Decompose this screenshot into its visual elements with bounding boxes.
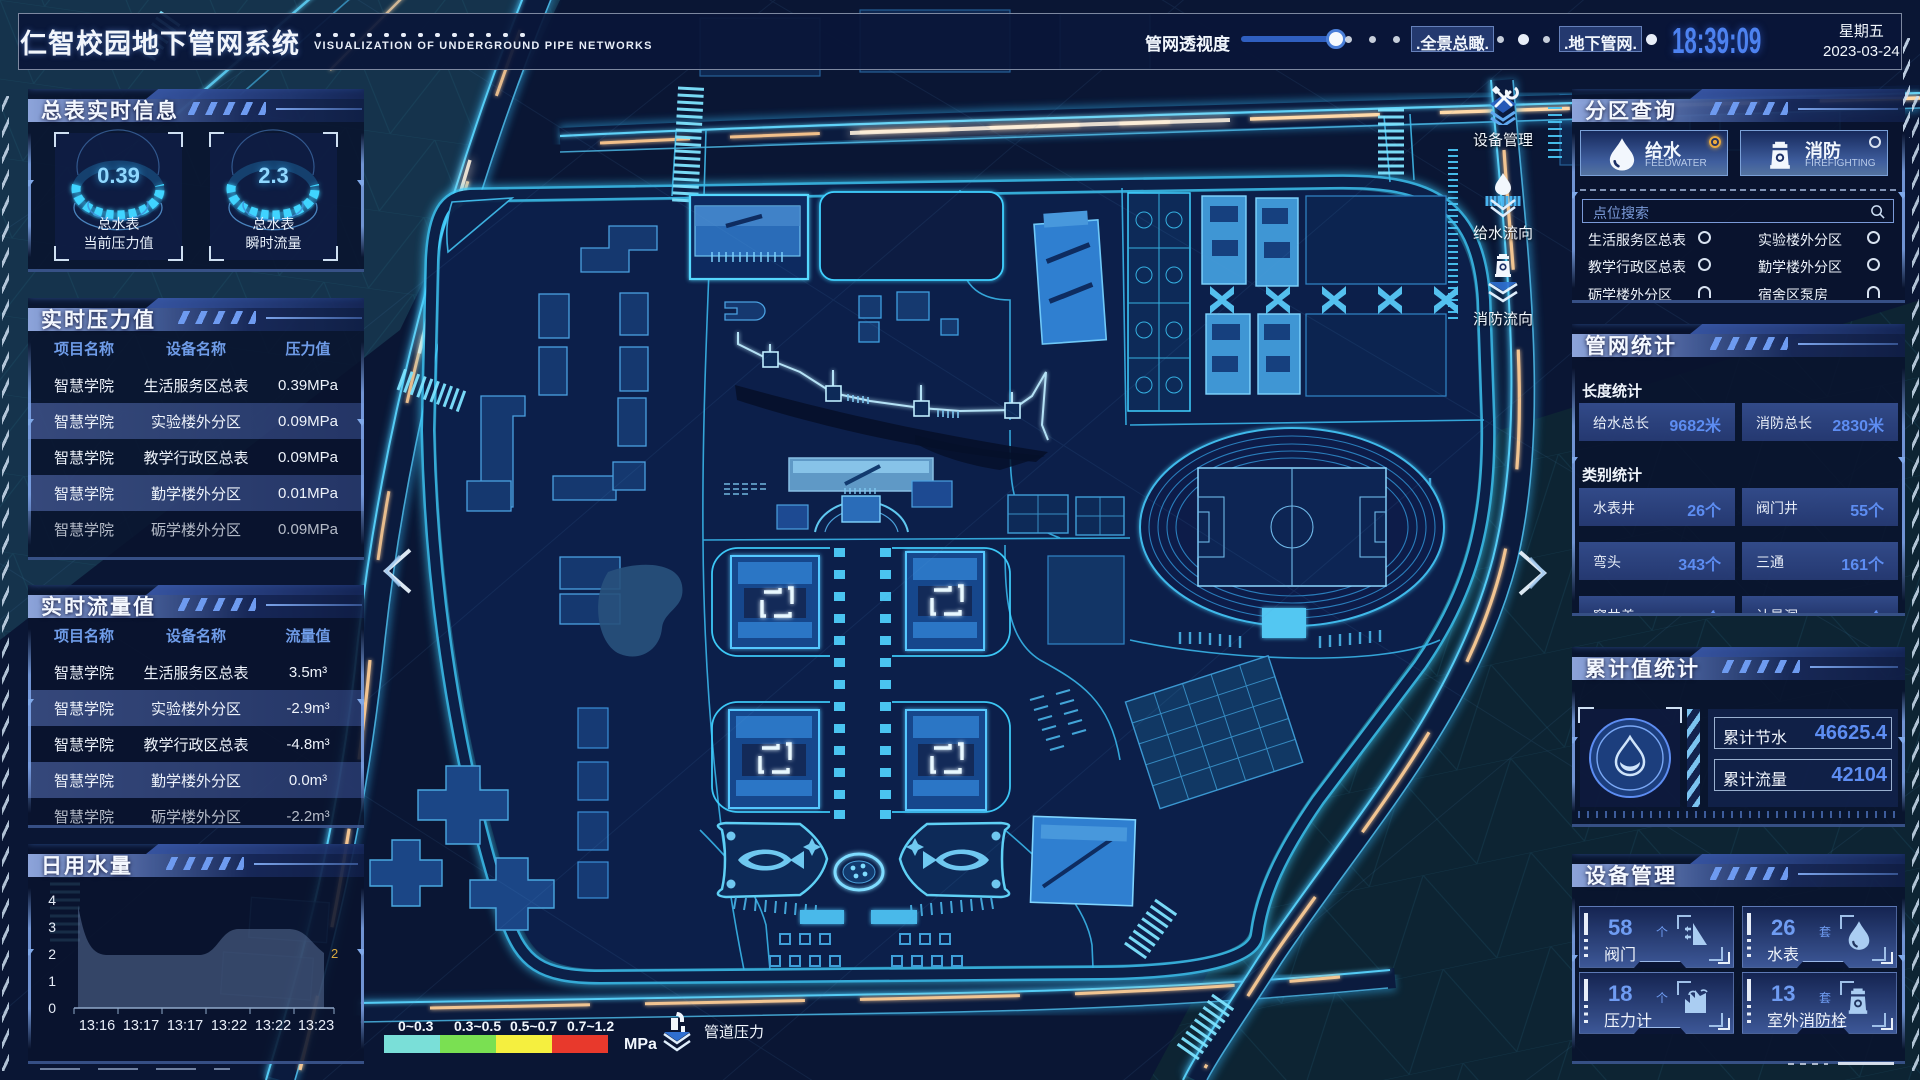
svg-text:13:17: 13:17 bbox=[123, 1018, 159, 1034]
svg-text:13:23: 13:23 bbox=[298, 1018, 334, 1034]
svg-text:13:16: 13:16 bbox=[79, 1018, 115, 1034]
svg-text:13:17: 13:17 bbox=[167, 1018, 203, 1034]
svg-text:0: 0 bbox=[48, 1000, 56, 1016]
svg-text:13:22: 13:22 bbox=[255, 1018, 291, 1034]
svg-text:13:22: 13:22 bbox=[211, 1018, 247, 1034]
svg-text:3: 3 bbox=[48, 919, 56, 935]
svg-text:2: 2 bbox=[48, 946, 56, 962]
svg-text:1: 1 bbox=[48, 973, 56, 989]
svg-text:4: 4 bbox=[48, 892, 56, 908]
svg-text:2: 2 bbox=[331, 946, 338, 961]
